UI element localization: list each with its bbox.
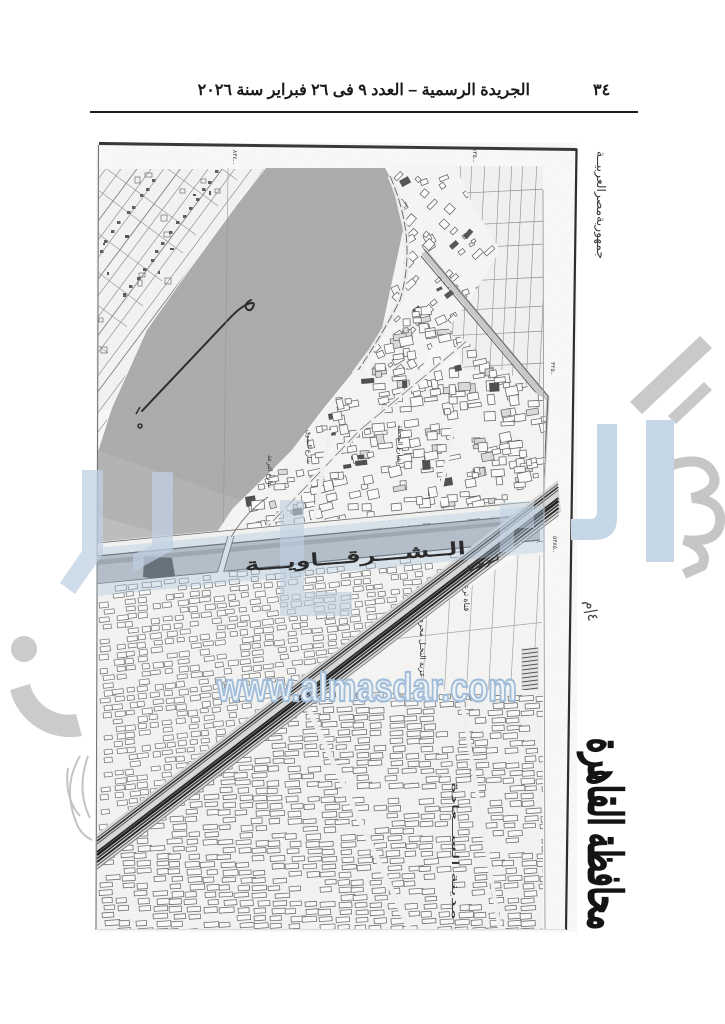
svg-text:٤|م: ٤|م: [581, 599, 601, 623]
svg-text:جمهوريةمصرالعربيــة: جمهوريةمصرالعربيــة: [594, 151, 608, 259]
svg-text:محافظة القاهرة: محافظة القاهرة: [577, 738, 630, 930]
